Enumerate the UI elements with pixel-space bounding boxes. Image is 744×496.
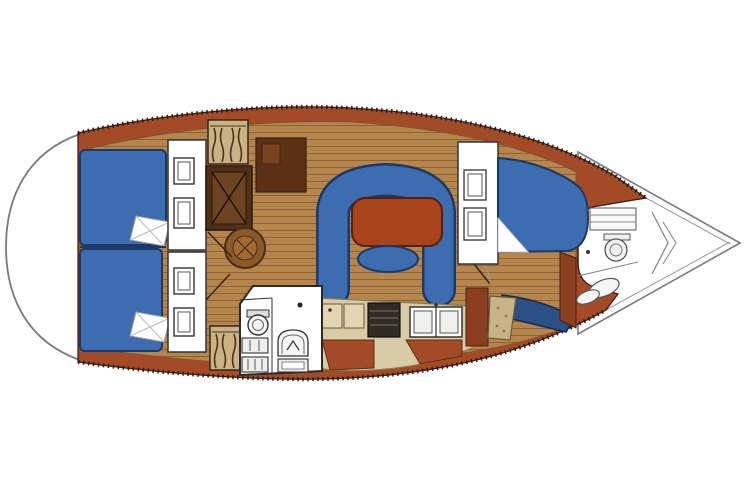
stove-oven xyxy=(368,303,400,337)
floorplan-svg xyxy=(0,0,744,496)
passage-round-table xyxy=(225,228,265,268)
toilet-icon xyxy=(247,310,269,335)
salon-stool xyxy=(358,246,418,272)
burner-right xyxy=(344,304,364,328)
door-knob xyxy=(298,303,303,308)
double-sink xyxy=(410,303,462,337)
yacht-floorplan xyxy=(0,0,744,496)
hanging-locker-top xyxy=(208,120,248,164)
forward-bulkhead-wardrobe xyxy=(458,142,498,264)
aft-cabin-wardrobes xyxy=(168,140,206,352)
hull-side-cabinet xyxy=(560,252,576,328)
port-aft-cabin xyxy=(80,150,170,246)
burner-left xyxy=(322,304,342,328)
salon-table xyxy=(352,198,442,246)
aft-head xyxy=(240,286,322,375)
sink-arch-icon xyxy=(278,330,308,372)
stern-swim-platform xyxy=(6,134,80,360)
forward-cabinet-column xyxy=(466,288,488,346)
starboard-aft-cabin xyxy=(80,249,170,351)
galley-cabinet-front-left xyxy=(322,340,374,370)
companionway-engine-box xyxy=(206,166,252,230)
head-console-upper xyxy=(242,338,268,353)
salon-aft-cabinet xyxy=(256,138,306,192)
